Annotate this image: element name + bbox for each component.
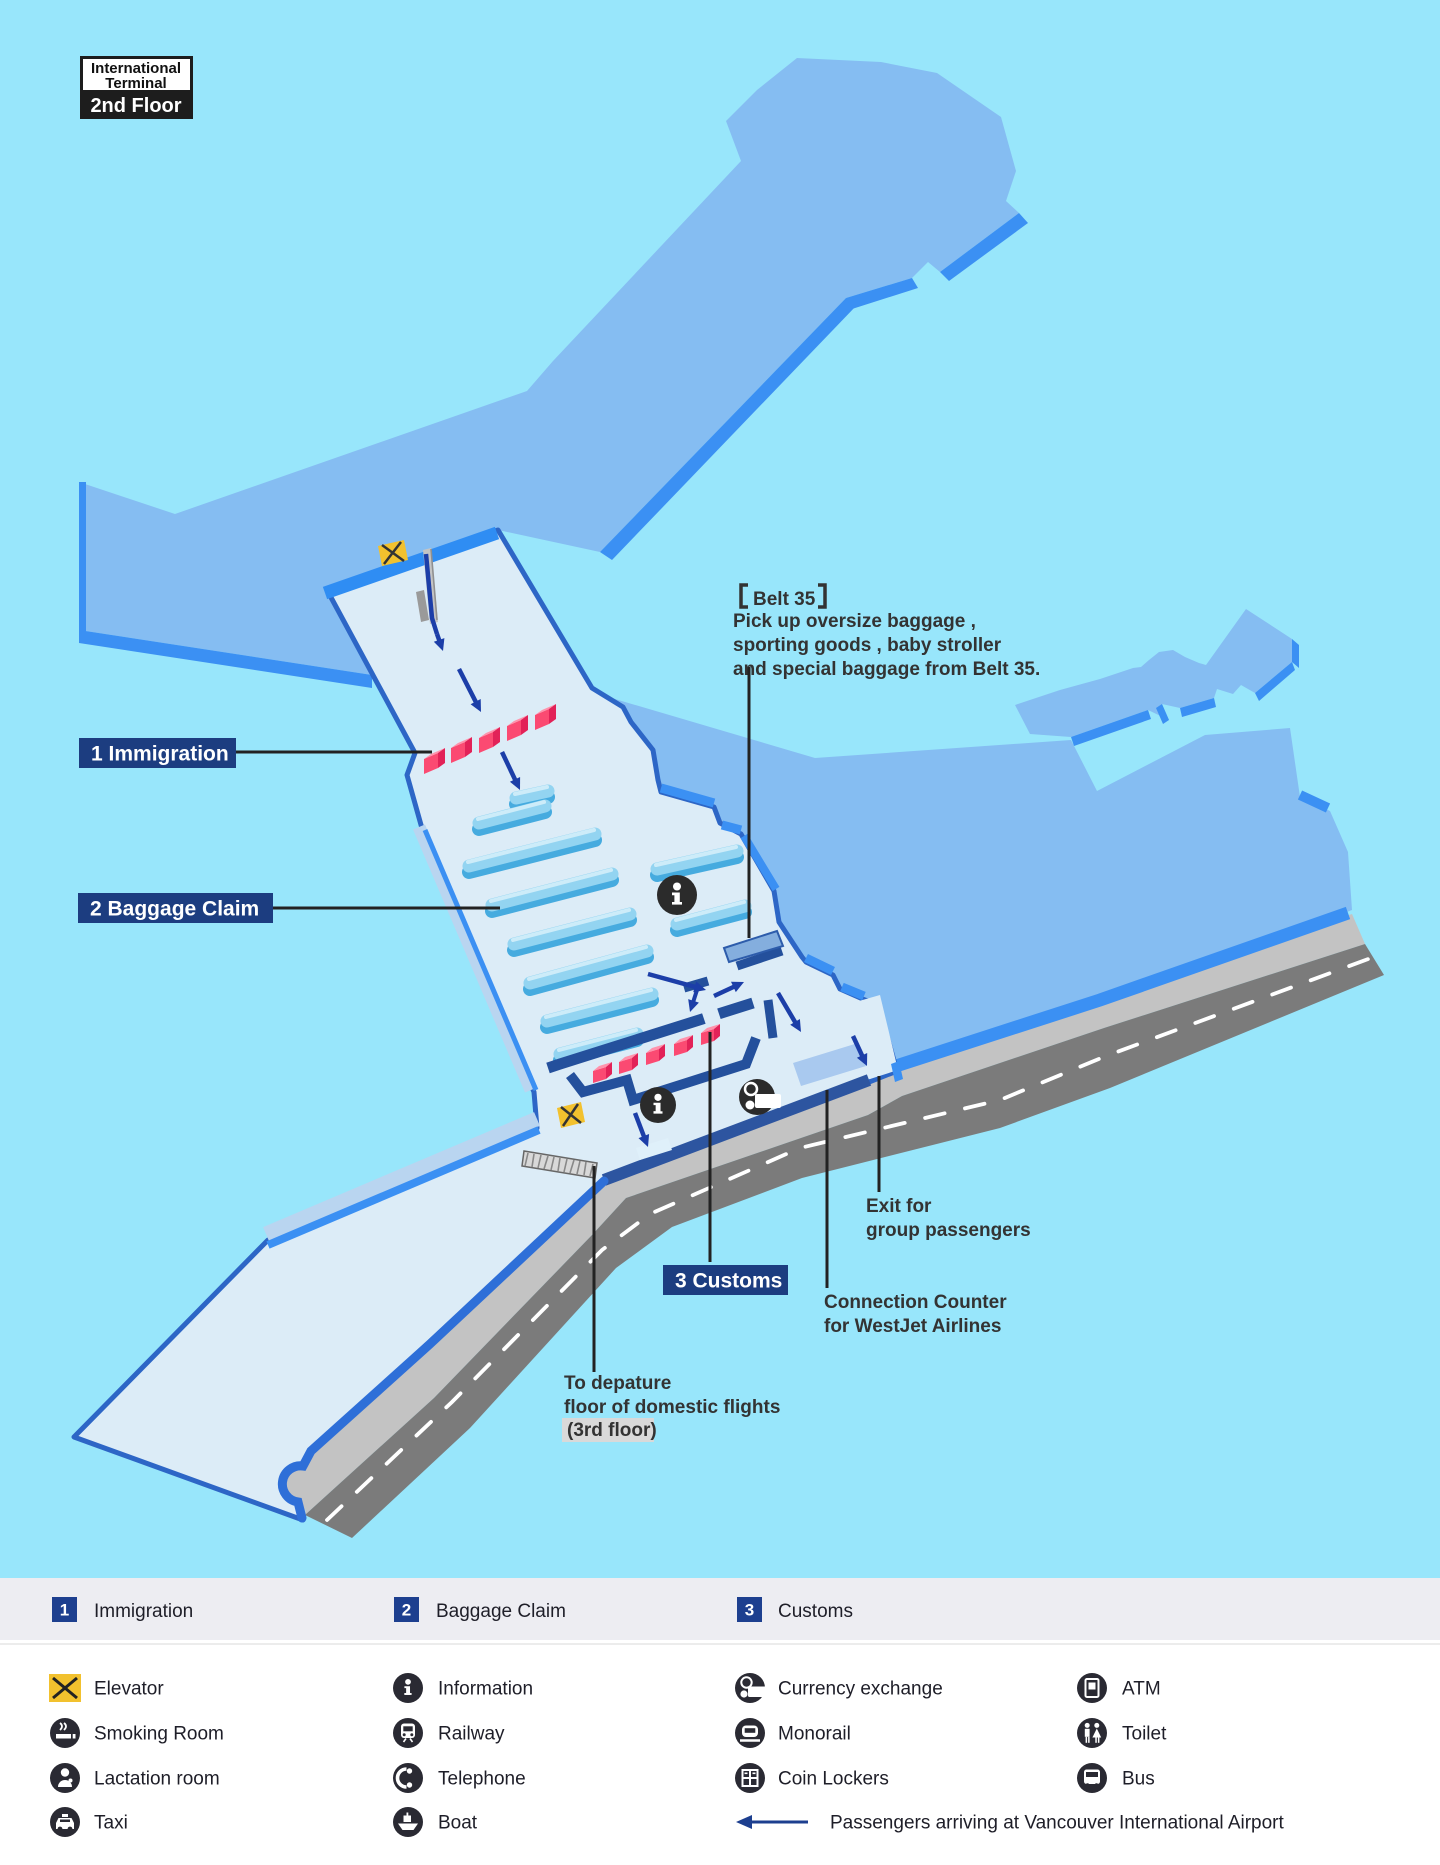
svg-text:2nd Floor: 2nd Floor <box>90 95 181 117</box>
svg-text:3 Customs: 3 Customs <box>675 1270 782 1293</box>
svg-text:Belt 35: Belt 35 <box>753 589 816 610</box>
svg-text:Baggage Claim: Baggage Claim <box>436 1601 566 1622</box>
svg-text:Smoking Room: Smoking Room <box>94 1724 224 1745</box>
svg-text:Customs: Customs <box>778 1601 853 1622</box>
svg-text:Railway: Railway <box>438 1724 505 1745</box>
svg-text:2: 2 <box>402 1601 411 1620</box>
svg-text:Elevator: Elevator <box>94 1679 164 1700</box>
svg-text:Immigration: Immigration <box>94 1601 193 1622</box>
svg-text:Information: Information <box>438 1679 533 1700</box>
svg-text:(3rd floor): (3rd floor) <box>567 1420 657 1441</box>
svg-text:Lactation room: Lactation room <box>94 1769 220 1790</box>
svg-text:3: 3 <box>745 1601 754 1620</box>
svg-text:Passengers arriving at Vancouv: Passengers arriving at Vancouver Interna… <box>830 1813 1285 1834</box>
svg-text:ATM: ATM <box>1122 1679 1161 1700</box>
svg-text:Bus: Bus <box>1122 1769 1155 1790</box>
svg-text:1 Immigration: 1 Immigration <box>91 743 229 766</box>
svg-text:2 Baggage Claim: 2 Baggage Claim <box>90 898 259 921</box>
svg-text:Currency exchange: Currency exchange <box>778 1679 943 1700</box>
svg-text:Boat: Boat <box>438 1813 478 1834</box>
svg-text:Telephone: Telephone <box>438 1769 526 1790</box>
svg-text:Toilet: Toilet <box>1122 1724 1167 1745</box>
svg-text:Taxi: Taxi <box>94 1813 128 1834</box>
svg-text:1: 1 <box>60 1601 69 1620</box>
svg-text:Coin Lockers: Coin Lockers <box>778 1769 889 1790</box>
svg-text:Terminal: Terminal <box>105 75 166 92</box>
svg-text:Monorail: Monorail <box>778 1724 851 1745</box>
